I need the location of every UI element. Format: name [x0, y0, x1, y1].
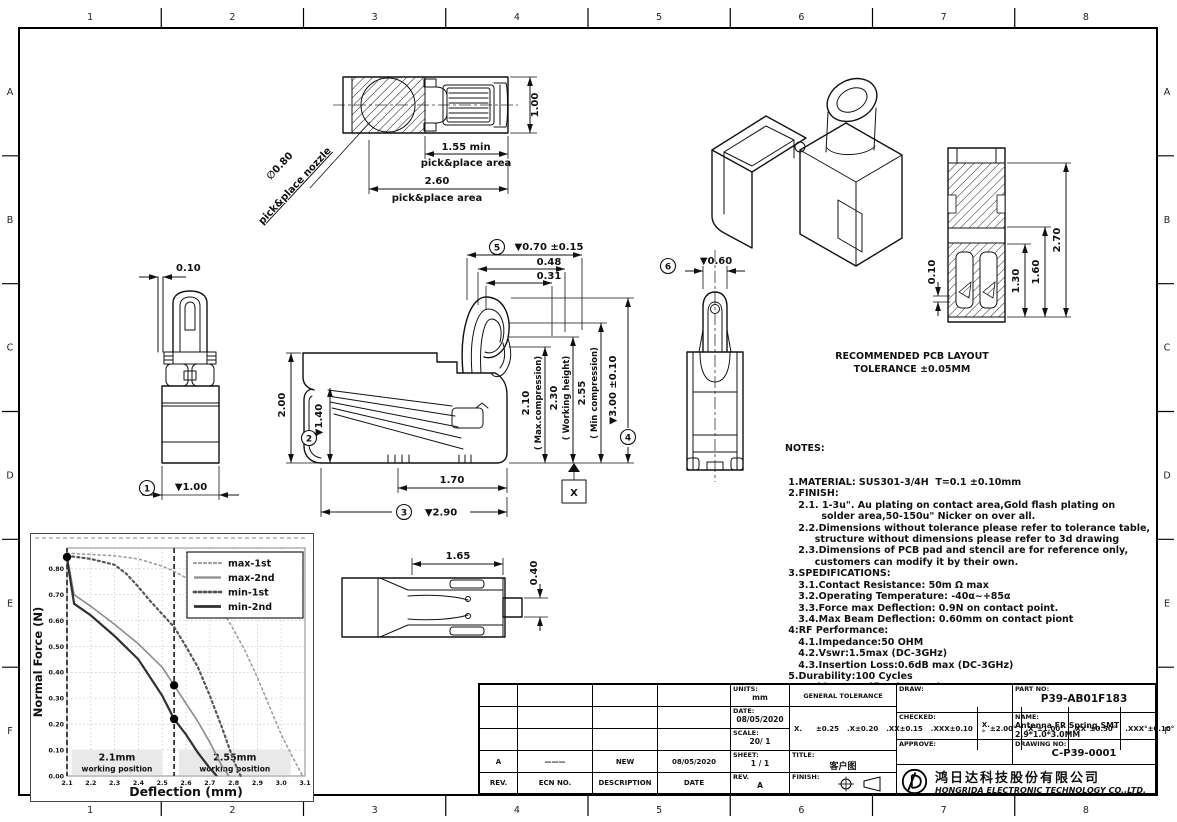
dim-pcb-270: 2.70 — [1052, 228, 1063, 253]
svg-text:1: 1 — [87, 12, 93, 23]
svg-text:2: 2 — [229, 805, 235, 816]
name-cell: NAME: Antenna FR Spring,SMT 2.9*1.0*3.0M… — [1012, 712, 1155, 739]
dim-pcb-130: 1.30 — [1011, 269, 1022, 294]
svg-text:E: E — [7, 598, 13, 609]
note-line: 1.MATERIAL: SUS301-3/4H T=0.1 ±0.10mm — [785, 477, 1157, 488]
dim-side-170: 1.70 — [440, 475, 465, 486]
name-value: Antenna FR Spring,SMT 2.9*1.0*3.0MM — [1013, 721, 1155, 739]
svg-text:0.10: 0.10 — [48, 747, 64, 754]
svg-text:A: A — [7, 87, 14, 98]
sheet-value: 1 / 1 — [731, 759, 789, 768]
dim-pcb-160: 1.60 — [1031, 260, 1042, 285]
note-line: 3.4.Max Beam Deflection: 0.60mm on conta… — [785, 614, 1157, 625]
svg-text:C: C — [7, 343, 14, 354]
rev-cell-empty — [592, 706, 657, 728]
checked-cell: CHECKED: — [896, 712, 1012, 739]
balloon-1: 1 — [144, 485, 150, 495]
svg-text:B: B — [1164, 215, 1171, 226]
rev-value: A — [731, 781, 789, 790]
svg-text:D: D — [6, 470, 13, 481]
svg-text:0.80: 0.80 — [48, 566, 64, 573]
balloon-3: 3 — [401, 509, 407, 519]
svg-text:0.70: 0.70 — [48, 592, 64, 599]
rev-row-date: 08/05/2020 — [657, 750, 730, 772]
svg-text:C: C — [1164, 343, 1171, 354]
svg-text:F: F — [7, 726, 12, 737]
svg-text:5: 5 — [656, 12, 662, 23]
rev-cell-empty — [657, 706, 730, 728]
svg-text:3.1: 3.1 — [299, 780, 310, 787]
note-line: 5.Durability:100 Cycles — [785, 671, 1157, 682]
svg-text:max-2nd: max-2nd — [228, 573, 275, 584]
date-cell: DATE: 08/05/2020 — [730, 706, 789, 728]
dim-front-offset: 0.10 — [176, 263, 201, 274]
dim-side-070: ▼0.70 ±0.15 — [515, 242, 584, 253]
note-line: 2.3.Dimensions of PCB pad and stencil ar… — [785, 545, 1157, 556]
dim-pickplace-inner: 1.55 min — [441, 142, 490, 153]
dim-bottom-040: 0.40 — [529, 561, 540, 586]
svg-text:4: 4 — [514, 12, 520, 23]
drawing-no-label: DRAWING NO: — [1013, 740, 1155, 748]
drawing-sheet: 1122334455667788AABBCCDDEEFF ∅0.80 pick&… — [0, 0, 1177, 822]
force-deflection-chart: 2.1mmworking position2.55mmworking posit… — [30, 533, 314, 802]
chart-canvas: 2.1mmworking position2.55mmworking posit… — [31, 534, 313, 805]
svg-text:7: 7 — [941, 805, 947, 816]
svg-text:3.0: 3.0 — [276, 780, 288, 787]
drawing-no-value: C-P39-0001 — [1013, 748, 1155, 759]
rev-cell-empty — [517, 706, 592, 728]
svg-text:2.3: 2.3 — [109, 780, 120, 787]
rev-header-description: DESCRIPTION — [592, 772, 657, 793]
draw-cell: DRAW: — [896, 685, 1012, 712]
side-view: 5 ▼0.70 ±0.15 0.48 0.31 ▼1.40 2 1.70 3 ▼… — [302, 240, 636, 520]
title-value: 客户图 — [790, 759, 896, 772]
dim-side-255-note: ( Min compression) — [590, 347, 600, 439]
dim-side-210: 2.10 — [521, 391, 532, 416]
title-cell: TITLE: 客户图 — [789, 750, 896, 772]
svg-text:0.50: 0.50 — [48, 644, 64, 651]
svg-text:max-1st: max-1st — [228, 559, 272, 570]
rev-cell-empty — [517, 728, 592, 750]
rev-cell-empty — [517, 685, 592, 706]
note-line: structure without dimensions please refe… — [785, 534, 1157, 545]
scale-label: SCALE: — [731, 729, 789, 737]
svg-text:2: 2 — [229, 12, 235, 23]
svg-text:E: E — [1164, 598, 1170, 609]
name-label: NAME: — [1013, 713, 1155, 721]
note-line: 3.3.Force max Deflection: 0.9N on contac… — [785, 603, 1157, 614]
dim-pickplace-outer: 2.60 — [425, 176, 450, 187]
drawing-no-cell: DRAWING NO: C-P39-0001 — [1012, 739, 1155, 764]
note-line: 2.2.Dimensions without tolerance please … — [785, 523, 1157, 534]
rev-cell-empty — [480, 706, 517, 728]
rev-label: REV. — [731, 773, 789, 781]
company-logo-icon — [901, 768, 928, 795]
notes-list: 1.MATERIAL: SUS301-3/4H T=0.1 ±0.10mm 2.… — [785, 477, 1157, 705]
svg-text:8: 8 — [1083, 12, 1089, 23]
tolerance-header: GENERAL TOLERANCE — [789, 685, 896, 706]
units-value: mm — [731, 693, 789, 702]
note-line: 3.2.Operating Temperature: -40α~+85α — [785, 591, 1157, 602]
dim-nozzle-label: pick&place nozzle — [257, 145, 334, 227]
rev-row-description: NEW — [592, 750, 657, 772]
note-line: 4.2.Vswr:1.5max (DC-3GHz) — [785, 648, 1157, 659]
sheet-cell: SHEET: 1 / 1 — [730, 750, 789, 772]
back-view: ▼0.60 6 — [661, 250, 746, 482]
label-pickplace-area-2: pick&place area — [392, 193, 483, 204]
dim-side-height: 2.00 — [277, 393, 288, 418]
svg-text:0.60: 0.60 — [48, 618, 64, 625]
pcb-caption-line1: RECOMMENDED PCB LAYOUT — [835, 351, 989, 362]
rev-cell-empty — [480, 685, 517, 706]
svg-text:min-1st: min-1st — [228, 588, 269, 599]
rev-cell-empty — [592, 728, 657, 750]
dim-side-210-note: ( Max.compression) — [534, 356, 544, 450]
notes-title: NOTES: — [785, 443, 1157, 454]
note-line: 2.FINISH: — [785, 488, 1157, 499]
note-line: 2.1. 1-3u". Au plating on contact area,G… — [785, 500, 1157, 511]
svg-text:working position: working position — [82, 765, 153, 774]
note-line: 4.1.Impedance:50 OHM — [785, 637, 1157, 648]
svg-text:2.1mm: 2.1mm — [99, 753, 136, 764]
projection-symbol-icon — [836, 776, 892, 792]
bottom-view: 1.65 0.40 — [342, 551, 548, 637]
scale-cell: SCALE: 20/ 1 — [730, 728, 789, 750]
dim-topview-height: 1.00 — [530, 93, 541, 118]
dim-nozzle-diameter: ∅0.80 — [265, 150, 296, 182]
svg-text:Deflection (mm): Deflection (mm) — [129, 784, 243, 799]
dim-pcb-010: 0.10 — [927, 260, 938, 285]
svg-text:2.2: 2.2 — [85, 780, 96, 787]
svg-text:0.00: 0.00 — [48, 773, 64, 780]
svg-text:3: 3 — [372, 805, 378, 816]
title-label: TITLE: — [790, 751, 896, 759]
datum-x-label: X — [570, 488, 578, 499]
notes-block: NOTES: 1.MATERIAL: SUS301-3/4H T=0.1 ±0.… — [785, 420, 1157, 717]
dim-front-width: ▼1.00 — [175, 482, 207, 493]
svg-text:D: D — [1163, 470, 1170, 481]
company-cell: 鸿日达科技股份有限公司 HONGRIDA ELECTRONIC TECHNOLO… — [896, 764, 1155, 793]
scale-value: 20/ 1 — [731, 737, 789, 746]
date-value: 08/05/2020 — [731, 715, 789, 724]
tol-linear-row: .X±0.20 — [843, 707, 882, 750]
approve-cell: APPROVE: — [896, 739, 1012, 764]
approve-label: APPROVE: — [897, 740, 1012, 748]
company-name-en: HONGRIDA ELECTRONIC TECHNOLOGY CO.,LTD. — [935, 786, 1146, 795]
note-line: customers can modify it by their own. — [785, 557, 1157, 568]
note-line: 4:RF Performance: — [785, 625, 1157, 636]
dim-back-060: ▼0.60 — [700, 256, 732, 267]
tolerance-table: X.±0.25 .X±0.20 .XX±0.15 .XXX±0.10 X.°±2… — [789, 706, 896, 750]
note-line: 4.3.Insertion Loss:0.6dB max (DC-3GHz) — [785, 660, 1157, 671]
units-cell: UNITS: mm — [730, 685, 789, 706]
svg-text:0.40: 0.40 — [48, 670, 64, 677]
svg-text:7: 7 — [941, 12, 947, 23]
rev-cell-empty — [657, 685, 730, 706]
svg-text:6: 6 — [798, 805, 804, 816]
rev-row-ecn: ——— — [517, 750, 592, 772]
svg-text:3: 3 — [372, 12, 378, 23]
svg-text:5: 5 — [656, 805, 662, 816]
checked-label: CHECKED: — [897, 713, 1012, 721]
dim-side-290: ▼2.90 — [425, 508, 457, 519]
rev-row-rev: A — [480, 750, 517, 772]
svg-text:0.30: 0.30 — [48, 696, 64, 703]
pcb-layout-view: 1.30 1.60 2.70 0.10 RECOMMENDED PCB LAYO… — [835, 148, 1071, 375]
finish-cell: FINISH: — [789, 772, 896, 793]
note-line: solder area,50-150u" Nicker on over all. — [785, 511, 1157, 522]
balloon-4: 4 — [625, 434, 631, 444]
revision-table: A ——— NEW 08/05/2020 REV. ECN NO. DESCRI… — [480, 685, 730, 793]
rev-header-date: DATE — [657, 772, 730, 793]
svg-text:0.20: 0.20 — [48, 721, 64, 728]
dim-side-230: 2.30 — [549, 386, 560, 411]
balloon-2: 2 — [306, 435, 312, 445]
svg-text:2.1: 2.1 — [61, 780, 72, 787]
svg-text:Normal Force (N): Normal Force (N) — [31, 607, 45, 718]
dim-side-230-note: ( Working height) — [562, 356, 572, 441]
part-no-cell: PART NO: P39-AB01F183 — [1012, 685, 1155, 712]
svg-text:min-2nd: min-2nd — [228, 602, 272, 613]
units-label: UNITS: — [731, 685, 789, 693]
svg-text:1: 1 — [87, 805, 93, 816]
tol-linear-row: X.±0.25 — [790, 707, 843, 750]
rev-cell-empty — [592, 685, 657, 706]
rev-header-rev: REV. — [480, 772, 517, 793]
balloon-5: 5 — [494, 244, 500, 254]
svg-text:6: 6 — [798, 12, 804, 23]
note-line: 3.1.Contact Resistance: 50m Ω max — [785, 580, 1157, 591]
sheet-label: SHEET: — [731, 751, 789, 759]
isometric-view — [712, 70, 902, 266]
svg-text:8: 8 — [1083, 805, 1089, 816]
dim-side-140: ▼1.40 — [314, 404, 325, 436]
dim-side-031: 0.31 — [537, 271, 562, 282]
date-label: DATE: — [731, 707, 789, 715]
draw-label: DRAW: — [897, 685, 1012, 693]
dim-side-048: 0.48 — [537, 257, 562, 268]
front-view: 0.10 ▼1.00 1 2.00 — [139, 263, 318, 500]
svg-text:4: 4 — [514, 805, 520, 816]
note-line: 3.SPEDIFICATIONS: — [785, 568, 1157, 579]
rev-cell: REV. A — [730, 772, 789, 793]
svg-text:A: A — [1164, 87, 1171, 98]
balloon-6: 6 — [665, 263, 671, 273]
title-block: A ——— NEW 08/05/2020 REV. ECN NO. DESCRI… — [478, 683, 1157, 795]
dim-bottom-165: 1.65 — [446, 551, 471, 562]
rev-cell-empty — [657, 728, 730, 750]
part-no-value: P39-AB01F183 — [1013, 693, 1155, 705]
svg-text:B: B — [7, 215, 14, 226]
company-name-cn: 鸿日达科技股份有限公司 — [935, 767, 1146, 786]
dim-side-300: ▼3.00 ±0.10 — [608, 356, 619, 425]
dim-side-255: 2.55 — [577, 381, 588, 406]
rev-header-ecn: ECN NO. — [517, 772, 592, 793]
pcb-caption-line2: TOLERANCE ±0.05MM — [854, 364, 971, 375]
svg-text:2.9: 2.9 — [252, 780, 263, 787]
part-no-label: PART NO: — [1013, 685, 1155, 693]
top-view: ∅0.80 pick&place nozzle 1.00 1.55 min pi… — [257, 77, 541, 227]
rev-cell-empty — [480, 728, 517, 750]
label-pickplace-area-1: pick&place area — [421, 158, 512, 169]
